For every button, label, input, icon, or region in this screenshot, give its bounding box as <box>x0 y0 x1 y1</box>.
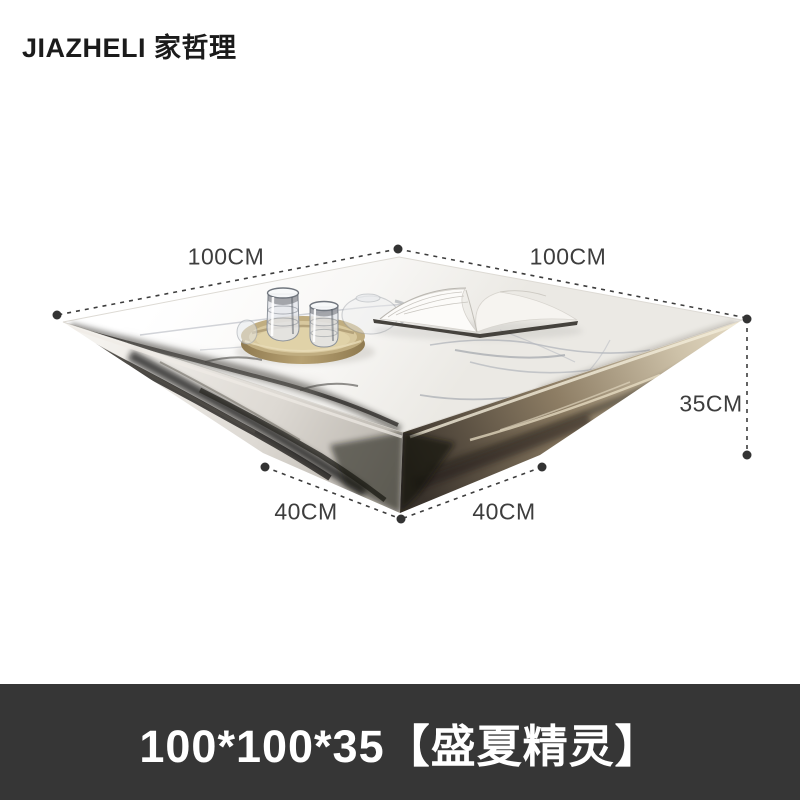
dimension-dot <box>53 311 62 320</box>
dimension-label-base-right: 40CM <box>472 499 535 526</box>
dimension-dot <box>538 463 547 472</box>
coffee-table <box>63 257 742 513</box>
dimension-dot <box>261 463 270 472</box>
dimension-label-top-right: 100CM <box>530 244 607 271</box>
dimension-dot <box>397 515 406 524</box>
product-card: JIAZHELI 家哲理 <box>0 0 800 800</box>
dimension-label-base-left: 40CM <box>274 499 337 526</box>
dimension-dot <box>743 315 752 324</box>
dimension-dot <box>743 451 752 460</box>
product-title-bar: 100*100*35【盛夏精灵】 <box>0 684 800 800</box>
dimension-label-top-left: 100CM <box>188 244 265 271</box>
product-size-title: 100*100*35【盛夏精灵】 <box>139 710 660 775</box>
dimension-label-height: 35CM <box>679 391 742 418</box>
dimension-dot <box>394 245 403 254</box>
table-top <box>63 257 742 432</box>
